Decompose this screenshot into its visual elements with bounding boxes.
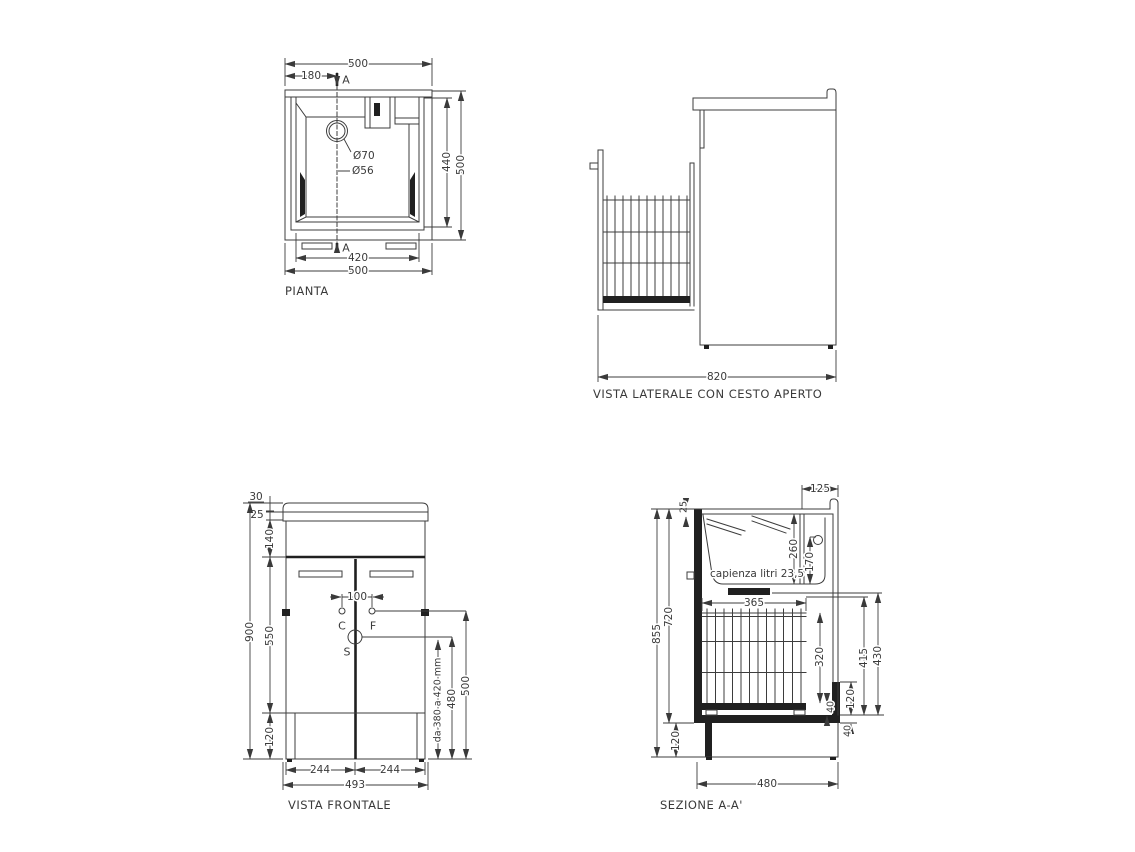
- laterale-geometry: [590, 89, 836, 349]
- sezione-view: 125 25 260 170 capienza litri 23,5 365 3…: [651, 483, 884, 812]
- frontale-foot-left: [287, 759, 292, 762]
- pianta-dim-500-top: 500: [348, 58, 368, 70]
- pianta-right-wall-mark: [410, 172, 415, 217]
- sezione-dim-365: 365: [744, 597, 764, 609]
- pianta-hole-leaders: [338, 139, 351, 171]
- sezione-left-wall: [694, 509, 702, 715]
- laterale-cabinet-body: [700, 110, 836, 345]
- frontale-dim-120: 120: [264, 727, 276, 747]
- sezione-basket-rails: [702, 613, 806, 673]
- sezione-dim-25: 25: [679, 501, 690, 513]
- laterale-title: VISTA LATERALE CON CESTO APERTO: [593, 387, 822, 401]
- sezione-dim-480: 480: [757, 778, 777, 790]
- sezione-foot-right: [830, 757, 836, 760]
- pianta-dim-hole-inner: Ø56: [352, 165, 374, 177]
- pianta-foot-left: [302, 243, 332, 249]
- frontale-dim-100: 100: [347, 591, 367, 603]
- sezione-dim-120-left: 120: [670, 731, 682, 751]
- sezione-dim-720: 720: [663, 607, 675, 627]
- laterale-view: 820 VISTA LATERALE CON CESTO APERTO: [590, 89, 836, 401]
- sezione-wheel-right: [794, 710, 805, 715]
- sezione-wall-fixing: [687, 572, 694, 579]
- sezione-basket-bars: [707, 609, 801, 703]
- pianta-corner-column-shelf: [365, 97, 419, 128]
- sezione-dim-170: 170: [804, 552, 816, 572]
- frontale-dim-493: 493: [345, 779, 365, 791]
- frontale-dim-30: 30: [249, 491, 262, 503]
- laterale-basket-bars: [607, 196, 687, 296]
- sezione-dim-40-bottom: 40: [843, 725, 854, 737]
- laterale-basket-front-post: [598, 150, 694, 310]
- sezione-bottom-panel: [694, 715, 840, 723]
- frontale-leader-lines: [362, 611, 466, 637]
- pianta-extension-lines: [285, 58, 466, 275]
- laterale-dimensions: 820: [598, 315, 836, 383]
- frontale-handle-left: [299, 571, 342, 577]
- pianta-dimensions: 500 180 A A Ø70 Ø56 440 500 420 500: [285, 58, 467, 277]
- laterale-worktop-profile: [693, 89, 836, 110]
- sezione-dimensions: 125 25 260 170 capienza litri 23,5 365 3…: [651, 483, 884, 790]
- pianta-geometry: [285, 73, 432, 252]
- frontale-point-c-hole: [339, 608, 345, 614]
- frontale-view: 100 C F S 30 25 140 900 550 120 da 380 a…: [243, 491, 472, 812]
- pianta-view: 500 180 A A Ø70 Ø56 440 500 420 500 PIAN…: [285, 58, 467, 298]
- pianta-basin-opening: [296, 103, 419, 222]
- sezione-dim-120-right: 120: [845, 689, 857, 709]
- frontale-point-f-hole: [369, 608, 375, 614]
- frontale-hinge-right: [421, 609, 429, 616]
- frontale-hinge-left: [282, 609, 290, 616]
- frontale-dimensions: 100 C F S 30 25 140 900 550 120 da 380 a…: [243, 491, 472, 791]
- sezione-dim-125: 125: [810, 483, 830, 495]
- sezione-foot-left: [706, 757, 712, 760]
- sezione-washboard-ridges: [707, 516, 790, 535]
- sezione-basin-support: [728, 588, 770, 595]
- frontale-label-s: S: [344, 646, 351, 659]
- pianta-title: PIANTA: [285, 284, 329, 298]
- drawing-canvas: 500 180 A A Ø70 Ø56 440 500 420 500 PIAN…: [0, 0, 1135, 852]
- sezione-plinth-board: [705, 723, 712, 757]
- technical-drawing-sheet: 500 180 A A Ø70 Ø56 440 500 420 500 PIAN…: [0, 0, 1135, 852]
- sezione-dim-855: 855: [651, 624, 663, 644]
- sezione-reference-lines: [772, 593, 882, 597]
- frontale-dim-500: 500: [460, 676, 472, 696]
- sezione-dim-320: 320: [814, 647, 826, 667]
- sezione-capacity-note: capienza litri 23,5: [710, 568, 804, 580]
- frontale-dim-550: 550: [264, 626, 276, 646]
- sezione-title: SEZIONE A-A': [660, 798, 743, 812]
- sezione-wheel-left: [706, 710, 717, 715]
- frontale-label-f: F: [370, 620, 376, 633]
- pianta-left-wall-mark: [300, 172, 305, 217]
- pianta-dim-180: 180: [301, 70, 321, 82]
- frontale-dim-140: 140: [264, 529, 276, 549]
- laterale-foot-left: [704, 345, 709, 349]
- pianta-foot-right: [386, 243, 416, 249]
- pianta-dim-500-bottom: 500: [348, 265, 368, 277]
- pianta-column-mark: [374, 103, 380, 116]
- laterale-basket-rear-post: [690, 163, 694, 306]
- sezione-dim-260: 260: [788, 539, 800, 559]
- pianta-dim-440: 440: [441, 152, 453, 172]
- pianta-dim-500-right: 500: [455, 155, 467, 175]
- frontale-title: VISTA FRONTALE: [288, 798, 391, 812]
- frontale-dim-25: 25: [250, 509, 263, 521]
- sezione-geometry: [687, 499, 882, 760]
- laterale-foot-right: [828, 345, 833, 349]
- pianta-dim-hole-outer: Ø70: [353, 150, 375, 162]
- pianta-section-label-top: A: [342, 74, 350, 87]
- sezione-dim-415: 415: [858, 648, 870, 668]
- frontale-dim-range: da 380 a 420 mm: [433, 658, 444, 743]
- frontale-foot-right: [419, 759, 424, 762]
- frontale-dim-244-right: 244: [380, 764, 400, 776]
- frontale-dim-480: 480: [446, 689, 458, 709]
- sezione-basket-bottom-band: [702, 703, 806, 710]
- laterale-basket-bottom-band: [603, 296, 690, 303]
- laterale-post-tab: [590, 163, 598, 169]
- frontale-worktop: [283, 503, 428, 521]
- frontale-label-c: C: [338, 620, 346, 633]
- laterale-dim-820: 820: [707, 371, 727, 383]
- frontale-dim-900: 900: [244, 622, 256, 642]
- pianta-dim-420: 420: [348, 252, 368, 264]
- sezione-dim-40-wheel: 40: [826, 701, 837, 713]
- frontale-handle-right: [370, 571, 413, 577]
- frontale-dim-244-left: 244: [310, 764, 330, 776]
- sezione-dim-430: 430: [872, 646, 884, 666]
